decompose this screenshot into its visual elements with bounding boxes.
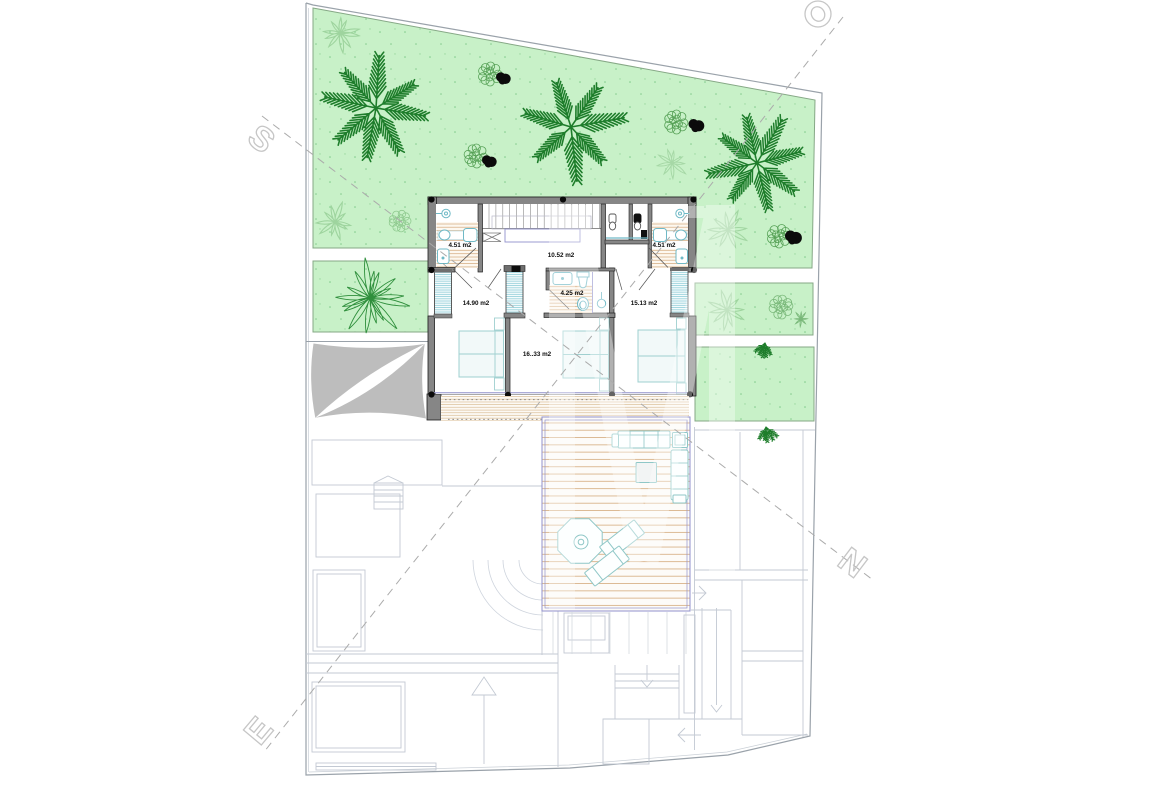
svg-text:4.51 m2: 4.51 m2 (448, 242, 472, 249)
svg-text:10.52 m2: 10.52 m2 (548, 252, 575, 259)
svg-text:15.13 m2: 15.13 m2 (631, 300, 658, 307)
svg-text:14.90 m2: 14.90 m2 (463, 300, 490, 307)
svg-text:4.25 m2: 4.25 m2 (560, 290, 584, 297)
svg-text:4.51 m2: 4.51 m2 (652, 242, 676, 249)
svg-text:16..33 m2: 16..33 m2 (523, 351, 552, 358)
